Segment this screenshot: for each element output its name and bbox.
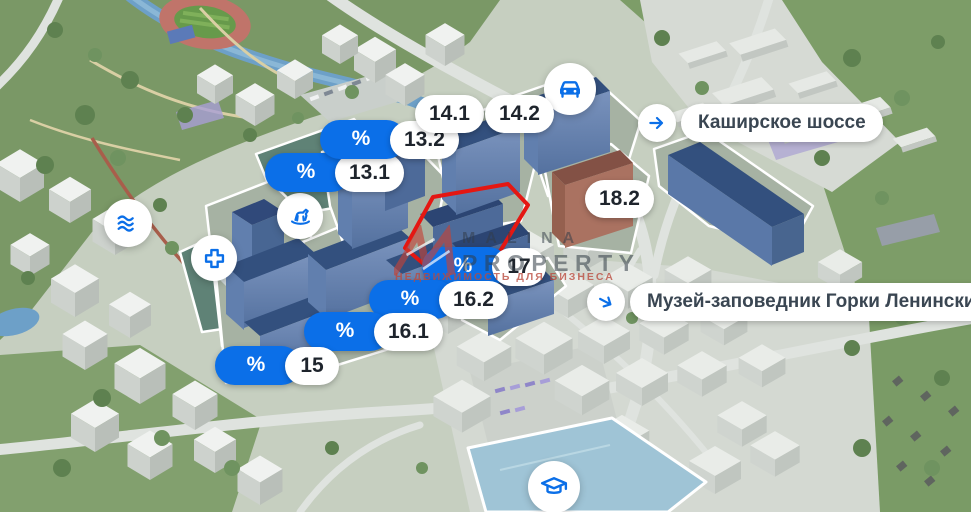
arrow-right-down-icon xyxy=(587,283,625,321)
arrow-right-icon xyxy=(638,104,676,142)
building-number: 18.2 xyxy=(585,180,654,218)
building-number: 16.1 xyxy=(374,313,443,351)
location-museum[interactable]: Музей-заповедник Горки Ленинские xyxy=(587,283,971,321)
building-badge-18-2[interactable]: 18.2 xyxy=(585,180,654,218)
location-label: Музей-заповедник Горки Ленинские xyxy=(630,283,971,321)
graduation-cap-icon-glyph xyxy=(539,472,569,502)
medical-cross-icon-glyph xyxy=(201,245,228,272)
building-badge-14-2[interactable]: 14.2 xyxy=(485,95,554,133)
building-badge-14-1[interactable]: 14.1 xyxy=(415,95,484,133)
school-icon[interactable] xyxy=(528,461,580,512)
car-icon-glyph xyxy=(555,74,585,104)
building-number: 14.1 xyxy=(415,95,484,133)
masterplan-view: % 13.1 % 13.2 14.1 14.2 18.2 % 17 % 16.2… xyxy=(0,0,971,512)
kindergarten-icon[interactable] xyxy=(277,193,323,239)
building-number: 13.1 xyxy=(335,154,404,192)
location-label: Каширское шоссе xyxy=(681,104,883,142)
location-kashirskoe[interactable]: Каширское шоссе xyxy=(638,104,883,142)
waves-icon-glyph xyxy=(114,209,142,237)
building-number: 16.2 xyxy=(439,281,508,319)
building-number: 14.2 xyxy=(485,95,554,133)
building-number: 15 xyxy=(285,347,339,385)
waterfront-icon[interactable] xyxy=(104,199,152,247)
building-badge-15[interactable]: % 15 xyxy=(215,346,339,385)
clinic-icon[interactable] xyxy=(191,235,237,281)
rocking-horse-icon-glyph xyxy=(287,203,314,230)
